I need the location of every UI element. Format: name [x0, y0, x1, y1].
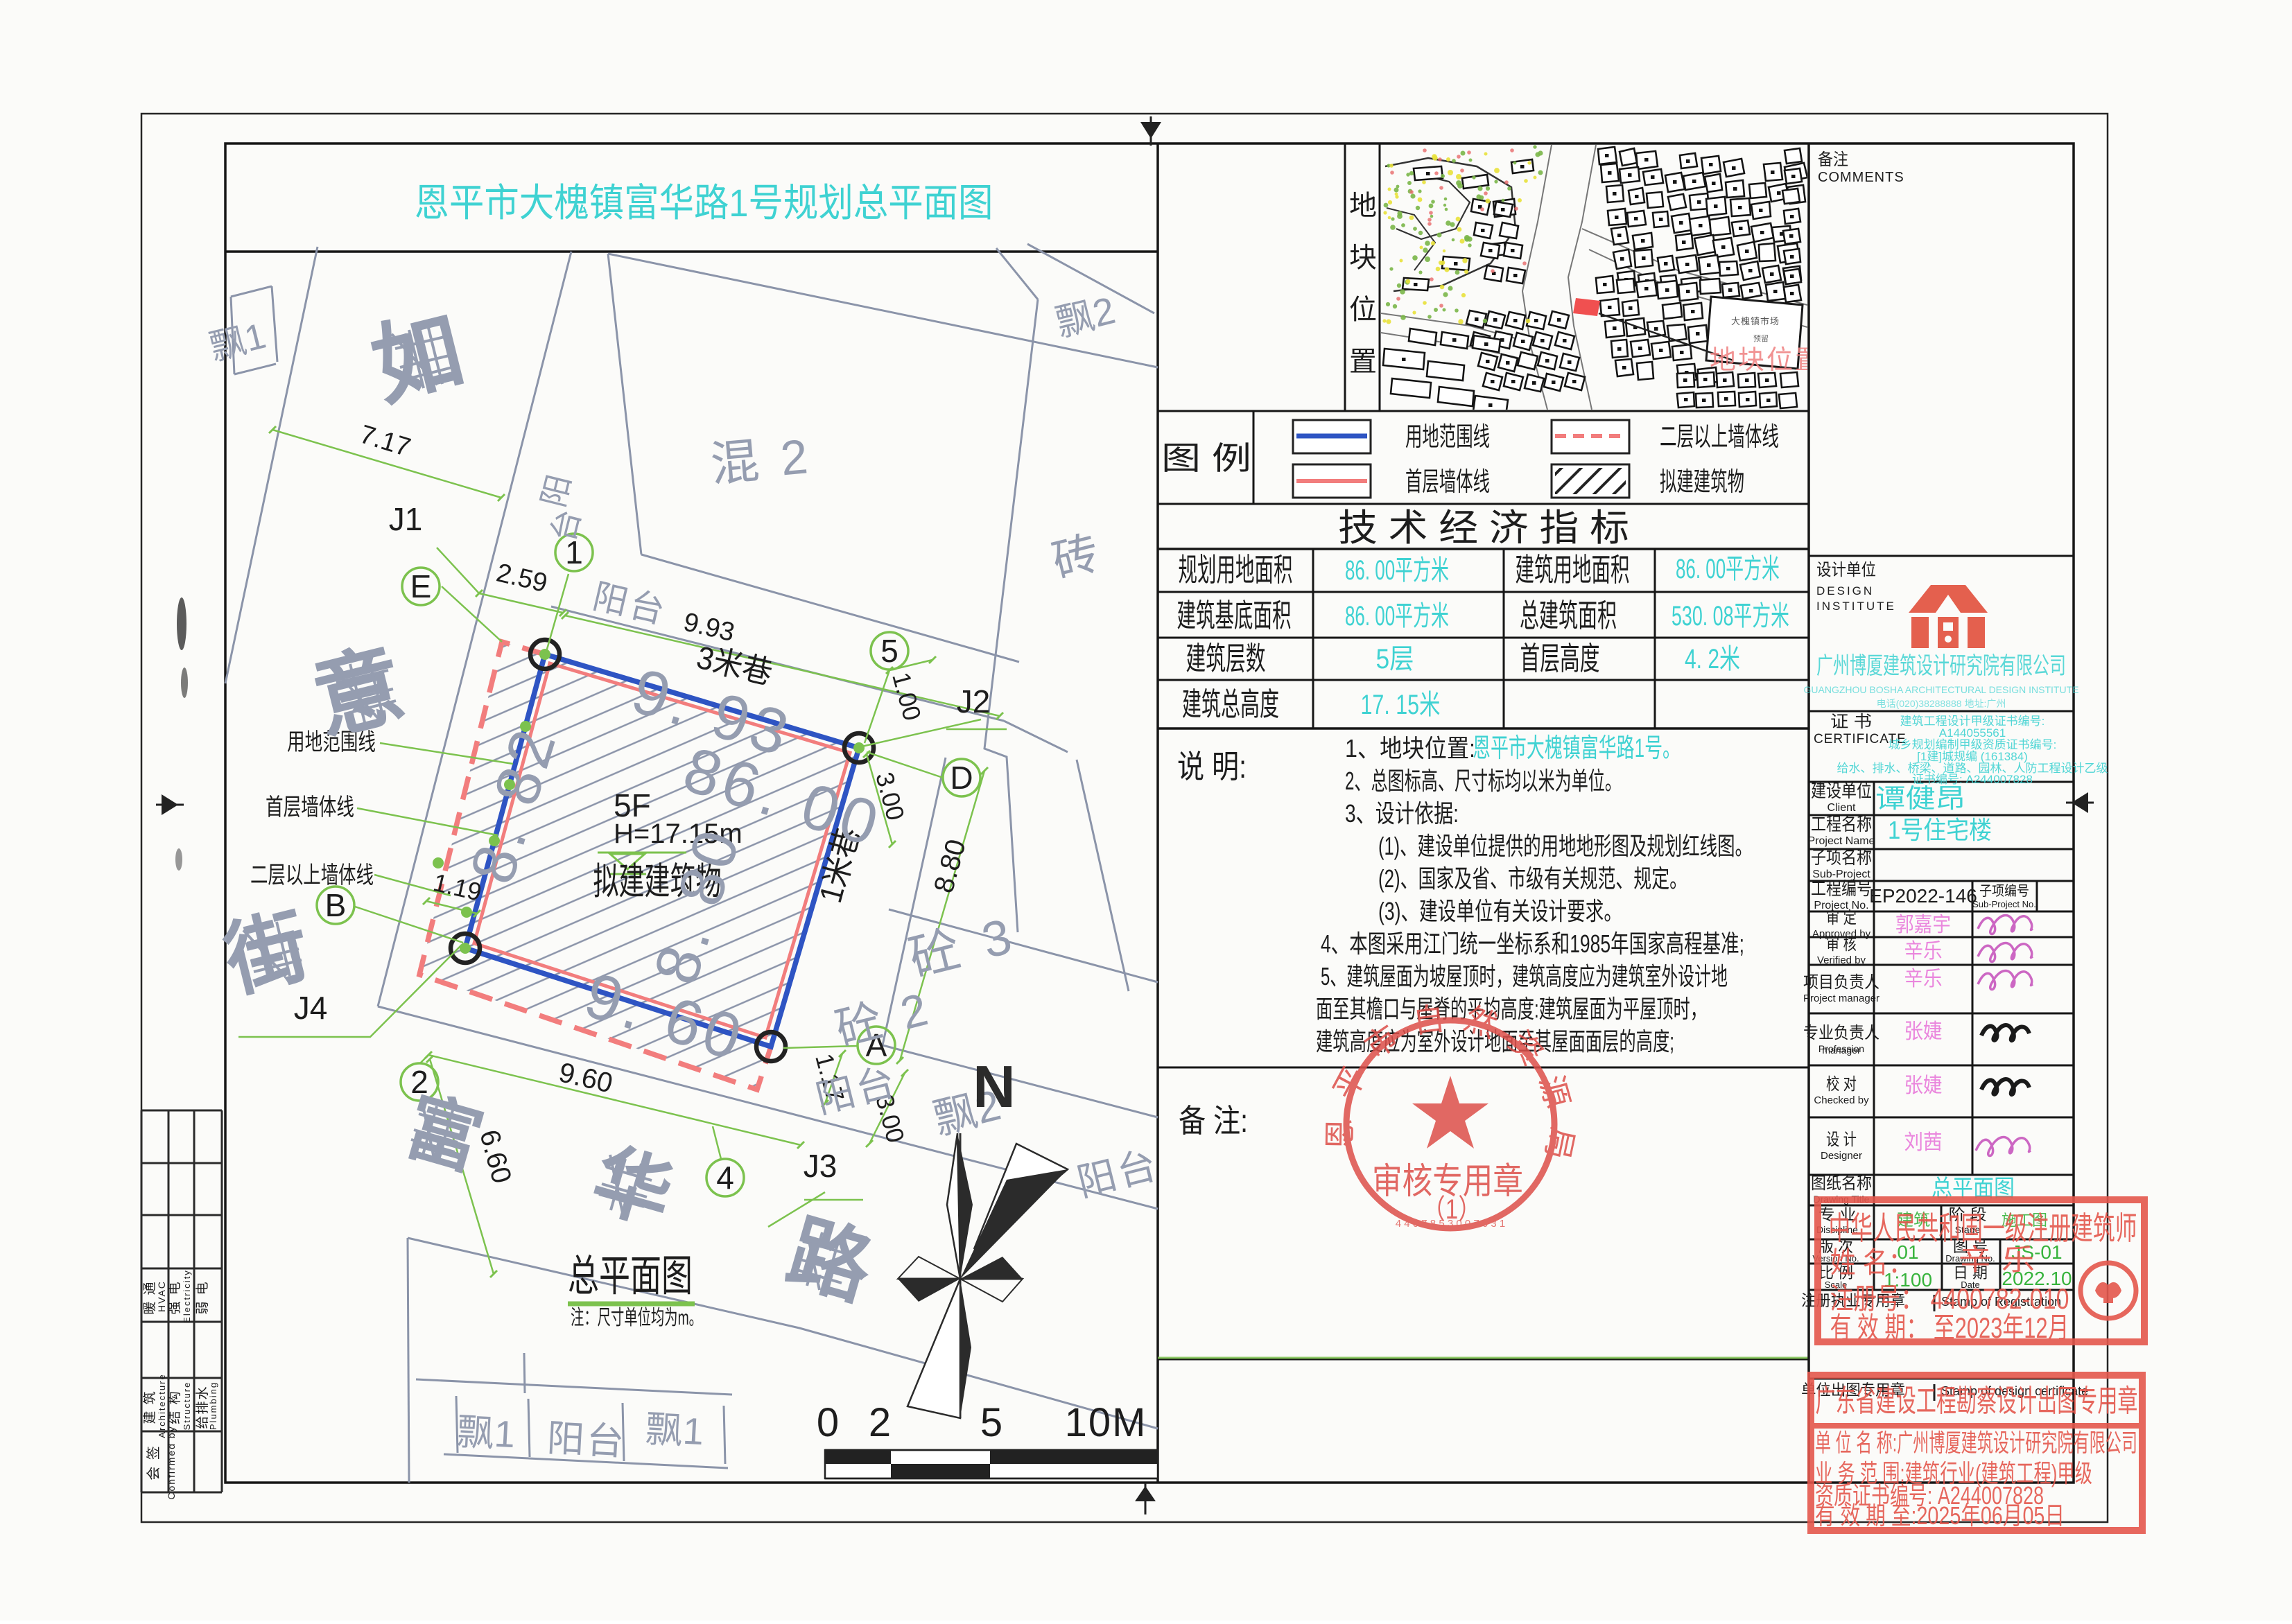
svg-text:EP2022-146: EP2022-146 — [1869, 885, 1977, 907]
svg-text:设计单位: 设计单位 — [1816, 561, 1876, 579]
svg-text:审 定: 审 定 — [1826, 909, 1857, 927]
svg-text:首层墙体线: 首层墙体线 — [266, 794, 354, 821]
svg-text:4. 2米: 4. 2米 — [1685, 644, 1740, 674]
svg-text:张婕: 张婕 — [1904, 1020, 1943, 1043]
svg-text:备注: 备注 — [1818, 150, 1848, 169]
svg-text:地块位置: 地块位置 — [1710, 346, 1823, 375]
svg-text:刘茜: 刘茜 — [1904, 1131, 1943, 1154]
svg-text:注：尺寸单位均为m。: 注：尺寸单位均为m。 — [571, 1307, 702, 1329]
svg-text:单 位 名 称:广州博厦建筑设计研究院有限公司: 单 位 名 称:广州博厦建筑设计研究院有限公司 — [1815, 1429, 2137, 1457]
svg-text:电话(020)38288888 地址:广州: 电话(020)38288888 地址:广州 — [1877, 698, 2006, 709]
svg-text:建 筑: 建 筑 — [142, 1390, 157, 1424]
svg-text:首层高度: 首层高度 — [1520, 640, 1600, 676]
svg-text:1、地块位置:: 1、地块位置: — [1345, 734, 1475, 762]
svg-text:Designer: Designer — [1821, 1150, 1862, 1162]
svg-text:86. 00平方米: 86. 00平方米 — [1345, 601, 1449, 631]
svg-text:Confirmed by: Confirmed by — [166, 1425, 177, 1499]
svg-text:Plumbing: Plumbing — [208, 1381, 218, 1430]
svg-text:Verified by: Verified by — [1817, 954, 1866, 966]
svg-text:总建筑面积: 总建筑面积 — [1520, 597, 1617, 634]
svg-text:工程名称: 工程名称 — [1811, 814, 1872, 835]
svg-text:建筑用地面积: 建筑用地面积 — [1516, 552, 1630, 588]
svg-text:N: N — [973, 1054, 1015, 1120]
svg-text:子项编号: 子项编号 — [1979, 883, 2029, 899]
svg-text:辛乐: 辛乐 — [1904, 940, 1943, 963]
svg-text:3、设计依据:: 3、设计依据: — [1345, 799, 1459, 828]
svg-text:5层: 5层 — [1376, 644, 1414, 674]
svg-text:二层以上墙体线: 二层以上墙体线 — [250, 862, 374, 889]
svg-text:有 效 期： 至2023年12月: 有 效 期： 至2023年12月 — [1830, 1311, 2069, 1344]
svg-text:会 签: 会 签 — [146, 1444, 162, 1481]
svg-text:COMMENTS: COMMENTS — [1818, 170, 1904, 185]
svg-text:广东省建设工程勘察设计出图专用章: 广东省建设工程勘察设计出图专用章 — [1816, 1384, 2138, 1418]
svg-text:DESIGN: DESIGN — [1816, 584, 1874, 597]
svg-text:子项名称: 子项名称 — [1811, 847, 1872, 868]
svg-text:备 注:: 备 注: — [1179, 1103, 1248, 1139]
svg-text:位: 位 — [1349, 295, 1377, 325]
svg-text:预留: 预留 — [1753, 334, 1769, 343]
svg-text:规划用地面积: 规划用地面积 — [1179, 552, 1293, 588]
svg-text:张婕: 张婕 — [1904, 1074, 1943, 1097]
svg-text:2、总图标高、尺寸标均以米为单位。: 2、总图标高、尺寸标均以米为单位。 — [1345, 767, 1622, 795]
svg-text:4 4 0 7 8 5 3 0 0 7 0 3 1: 4 4 0 7 8 5 3 0 0 7 0 3 1 — [1396, 1218, 1505, 1230]
svg-text:校 对: 校 对 — [1826, 1075, 1857, 1094]
svg-text:86. 00平方米: 86. 00平方米 — [1345, 555, 1449, 586]
svg-text:J1: J1 — [389, 501, 423, 537]
svg-text:INSTITUTE: INSTITUTE — [1816, 600, 1896, 613]
svg-text:Structure: Structure — [182, 1381, 192, 1431]
svg-text:块: 块 — [1349, 243, 1377, 273]
svg-text:5、建筑屋面为坡屋顶时，建筑高度应为建筑室外设计地: 5、建筑屋面为坡屋顶时，建筑高度应为建筑室外设计地 — [1321, 962, 1728, 990]
svg-text:530. 08平方米: 530. 08平方米 — [1672, 601, 1789, 631]
svg-text:二层以上墙体线: 二层以上墙体线 — [1660, 423, 1779, 452]
svg-text:大槐镇市场: 大槐镇市场 — [1731, 316, 1780, 326]
svg-text:E: E — [410, 568, 432, 604]
svg-text:图纸名称: 图纸名称 — [1811, 1174, 1872, 1193]
svg-text:首层墙体线: 首层墙体线 — [1405, 468, 1490, 497]
svg-text:有 效 期 至:2025年06月05日: 有 效 期 至:2025年06月05日 — [1815, 1501, 2065, 1530]
svg-text:置: 置 — [1349, 347, 1377, 377]
svg-text:(3)、建设单位有关设计要求。: (3)、建设单位有关设计要求。 — [1378, 897, 1622, 925]
svg-text:建筑基底面积: 建筑基底面积 — [1177, 597, 1292, 634]
svg-text:D: D — [950, 760, 973, 796]
svg-text:Checked by: Checked by — [1814, 1094, 1869, 1106]
svg-text:暖 通: 暖 通 — [142, 1280, 157, 1314]
svg-text:地: 地 — [1349, 191, 1377, 221]
svg-text:拟建建筑物: 拟建建筑物 — [1660, 468, 1744, 497]
svg-text:项目负责人: 项目负责人 — [1803, 973, 1879, 992]
svg-text:混 2: 混 2 — [709, 429, 815, 491]
svg-text:(2)、国家及省、市级有关规范、规定。: (2)、国家及省、市级有关规范、规定。 — [1378, 864, 1687, 893]
svg-text:弱 电: 弱 电 — [195, 1280, 210, 1314]
svg-text:说 明:: 说 明: — [1177, 749, 1247, 785]
svg-text:Client: Client — [1827, 802, 1856, 814]
svg-text:辛 乐: 辛 乐 — [1959, 1243, 2035, 1276]
svg-text:manager: manager — [1822, 1045, 1861, 1056]
svg-text:建设单位: 建设单位 — [1811, 780, 1872, 801]
svg-text:B: B — [325, 887, 347, 923]
svg-text:J4: J4 — [294, 990, 328, 1026]
svg-text:强 电: 强 电 — [167, 1280, 182, 1314]
svg-text:GUANGZHOU BOSHA ARCHITECTURAL: GUANGZHOU BOSHA ARCHITECTURAL DESIGN INS… — [1804, 684, 2079, 695]
svg-text:郭嘉宇: 郭嘉宇 — [1895, 914, 1951, 936]
svg-text:辛乐: 辛乐 — [1904, 968, 1943, 990]
svg-text:技 术 经 济 指 标: 技 术 经 济 指 标 — [1338, 507, 1629, 549]
svg-text:恩平市大槐镇富华路1号。: 恩平市大槐镇富华路1号。 — [1473, 734, 1681, 763]
svg-text:HVAC: HVAC — [156, 1280, 167, 1312]
svg-text:飘1: 飘1 — [455, 1411, 516, 1456]
svg-text:建筑总高度: 建筑总高度 — [1182, 686, 1279, 722]
svg-text:J2: J2 — [957, 683, 991, 719]
svg-text:用地范围线: 用地范围线 — [1405, 423, 1490, 452]
svg-text:飘1: 飘1 — [644, 1408, 704, 1453]
svg-text:总平面图: 总平面图 — [568, 1252, 693, 1300]
svg-text:审 核: 审 核 — [1826, 935, 1857, 954]
svg-text:证 书: 证 书 — [1830, 713, 1872, 731]
svg-text:设 计: 设 计 — [1826, 1130, 1857, 1149]
svg-text:Project manager: Project manager — [1803, 993, 1879, 1004]
svg-text:Sub-Project No.: Sub-Project No. — [1972, 899, 2036, 909]
svg-text:中华人民共和国一级注册建筑师: 中华人民共和国一级注册建筑师 — [1829, 1210, 2137, 1246]
svg-text:86. 00平方米: 86. 00平方米 — [1676, 554, 1780, 584]
svg-text:建筑层数: 建筑层数 — [1186, 640, 1266, 676]
svg-text:阳台: 阳台 — [546, 1417, 627, 1463]
svg-text:17. 15米: 17. 15米 — [1361, 690, 1441, 720]
svg-text:Project Name: Project Name — [1808, 835, 1875, 847]
svg-text:恩平市大槐镇富华路1号规划总平面图: 恩平市大槐镇富华路1号规划总平面图 — [415, 181, 993, 225]
svg-text:结 构: 结 构 — [167, 1390, 182, 1424]
svg-text:广州博厦建筑设计研究院有限公司: 广州博厦建筑设计研究院有限公司 — [1816, 653, 2066, 679]
svg-text:注册号： 4400782-010: 注册号： 4400782-010 — [1830, 1282, 2069, 1315]
svg-text:J3: J3 — [804, 1148, 837, 1184]
svg-text:5: 5 — [980, 1400, 1002, 1445]
svg-text:图 例: 图 例 — [1161, 440, 1251, 476]
svg-text:Electricity: Electricity — [182, 1269, 192, 1323]
svg-text:4、本图采用江门统一坐标系和1985年国家高程基准;: 4、本图采用江门统一坐标系和1985年国家高程基准; — [1321, 929, 1744, 958]
svg-text:10M: 10M — [1065, 1400, 1147, 1445]
svg-text:5: 5 — [880, 633, 898, 669]
svg-text:姓 名：: 姓 名： — [1830, 1246, 1913, 1279]
svg-text:4: 4 — [716, 1160, 734, 1196]
svg-text:2: 2 — [869, 1400, 891, 1445]
svg-text:工程编号: 工程编号 — [1811, 878, 1872, 899]
svg-text:专业负责人: 专业负责人 — [1803, 1024, 1879, 1042]
svg-text:1号住宅楼: 1号住宅楼 — [1888, 816, 1992, 844]
svg-text:(1)、建设单位提供的用地地形图及规划红线图。: (1)、建设单位提供的用地地形图及规划红线图。 — [1378, 832, 1753, 860]
svg-text:0: 0 — [817, 1400, 839, 1445]
svg-text:谭健昂: 谭健昂 — [1875, 785, 1965, 814]
